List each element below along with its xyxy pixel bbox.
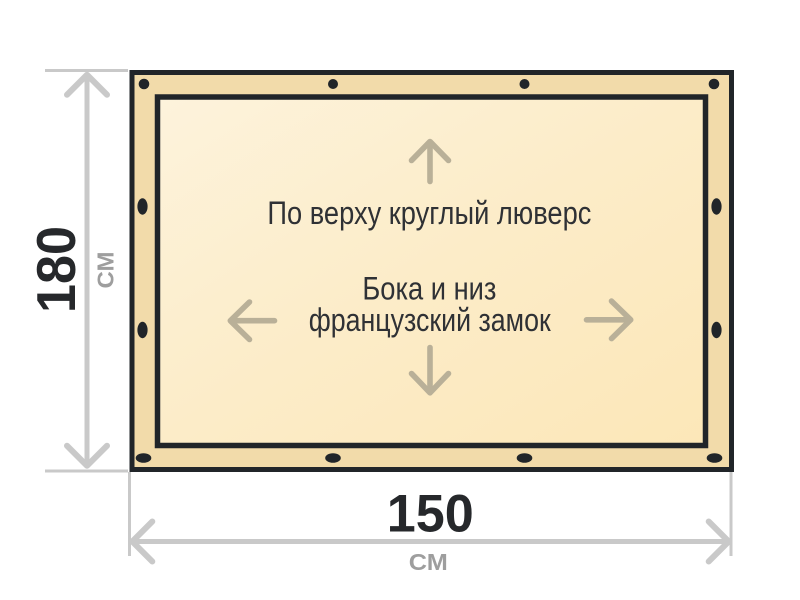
svg-text:По верху круглый люверс: По верху круглый люверс [267,195,591,231]
svg-text:180: 180 [25,226,87,313]
svg-text:150: 150 [387,485,474,544]
svg-text:Бока и низ: Бока и низ [362,271,496,307]
svg-text:СМ: СМ [93,252,119,289]
svg-text:СМ: СМ [409,549,448,575]
svg-text:французский замок: французский замок [309,302,552,338]
